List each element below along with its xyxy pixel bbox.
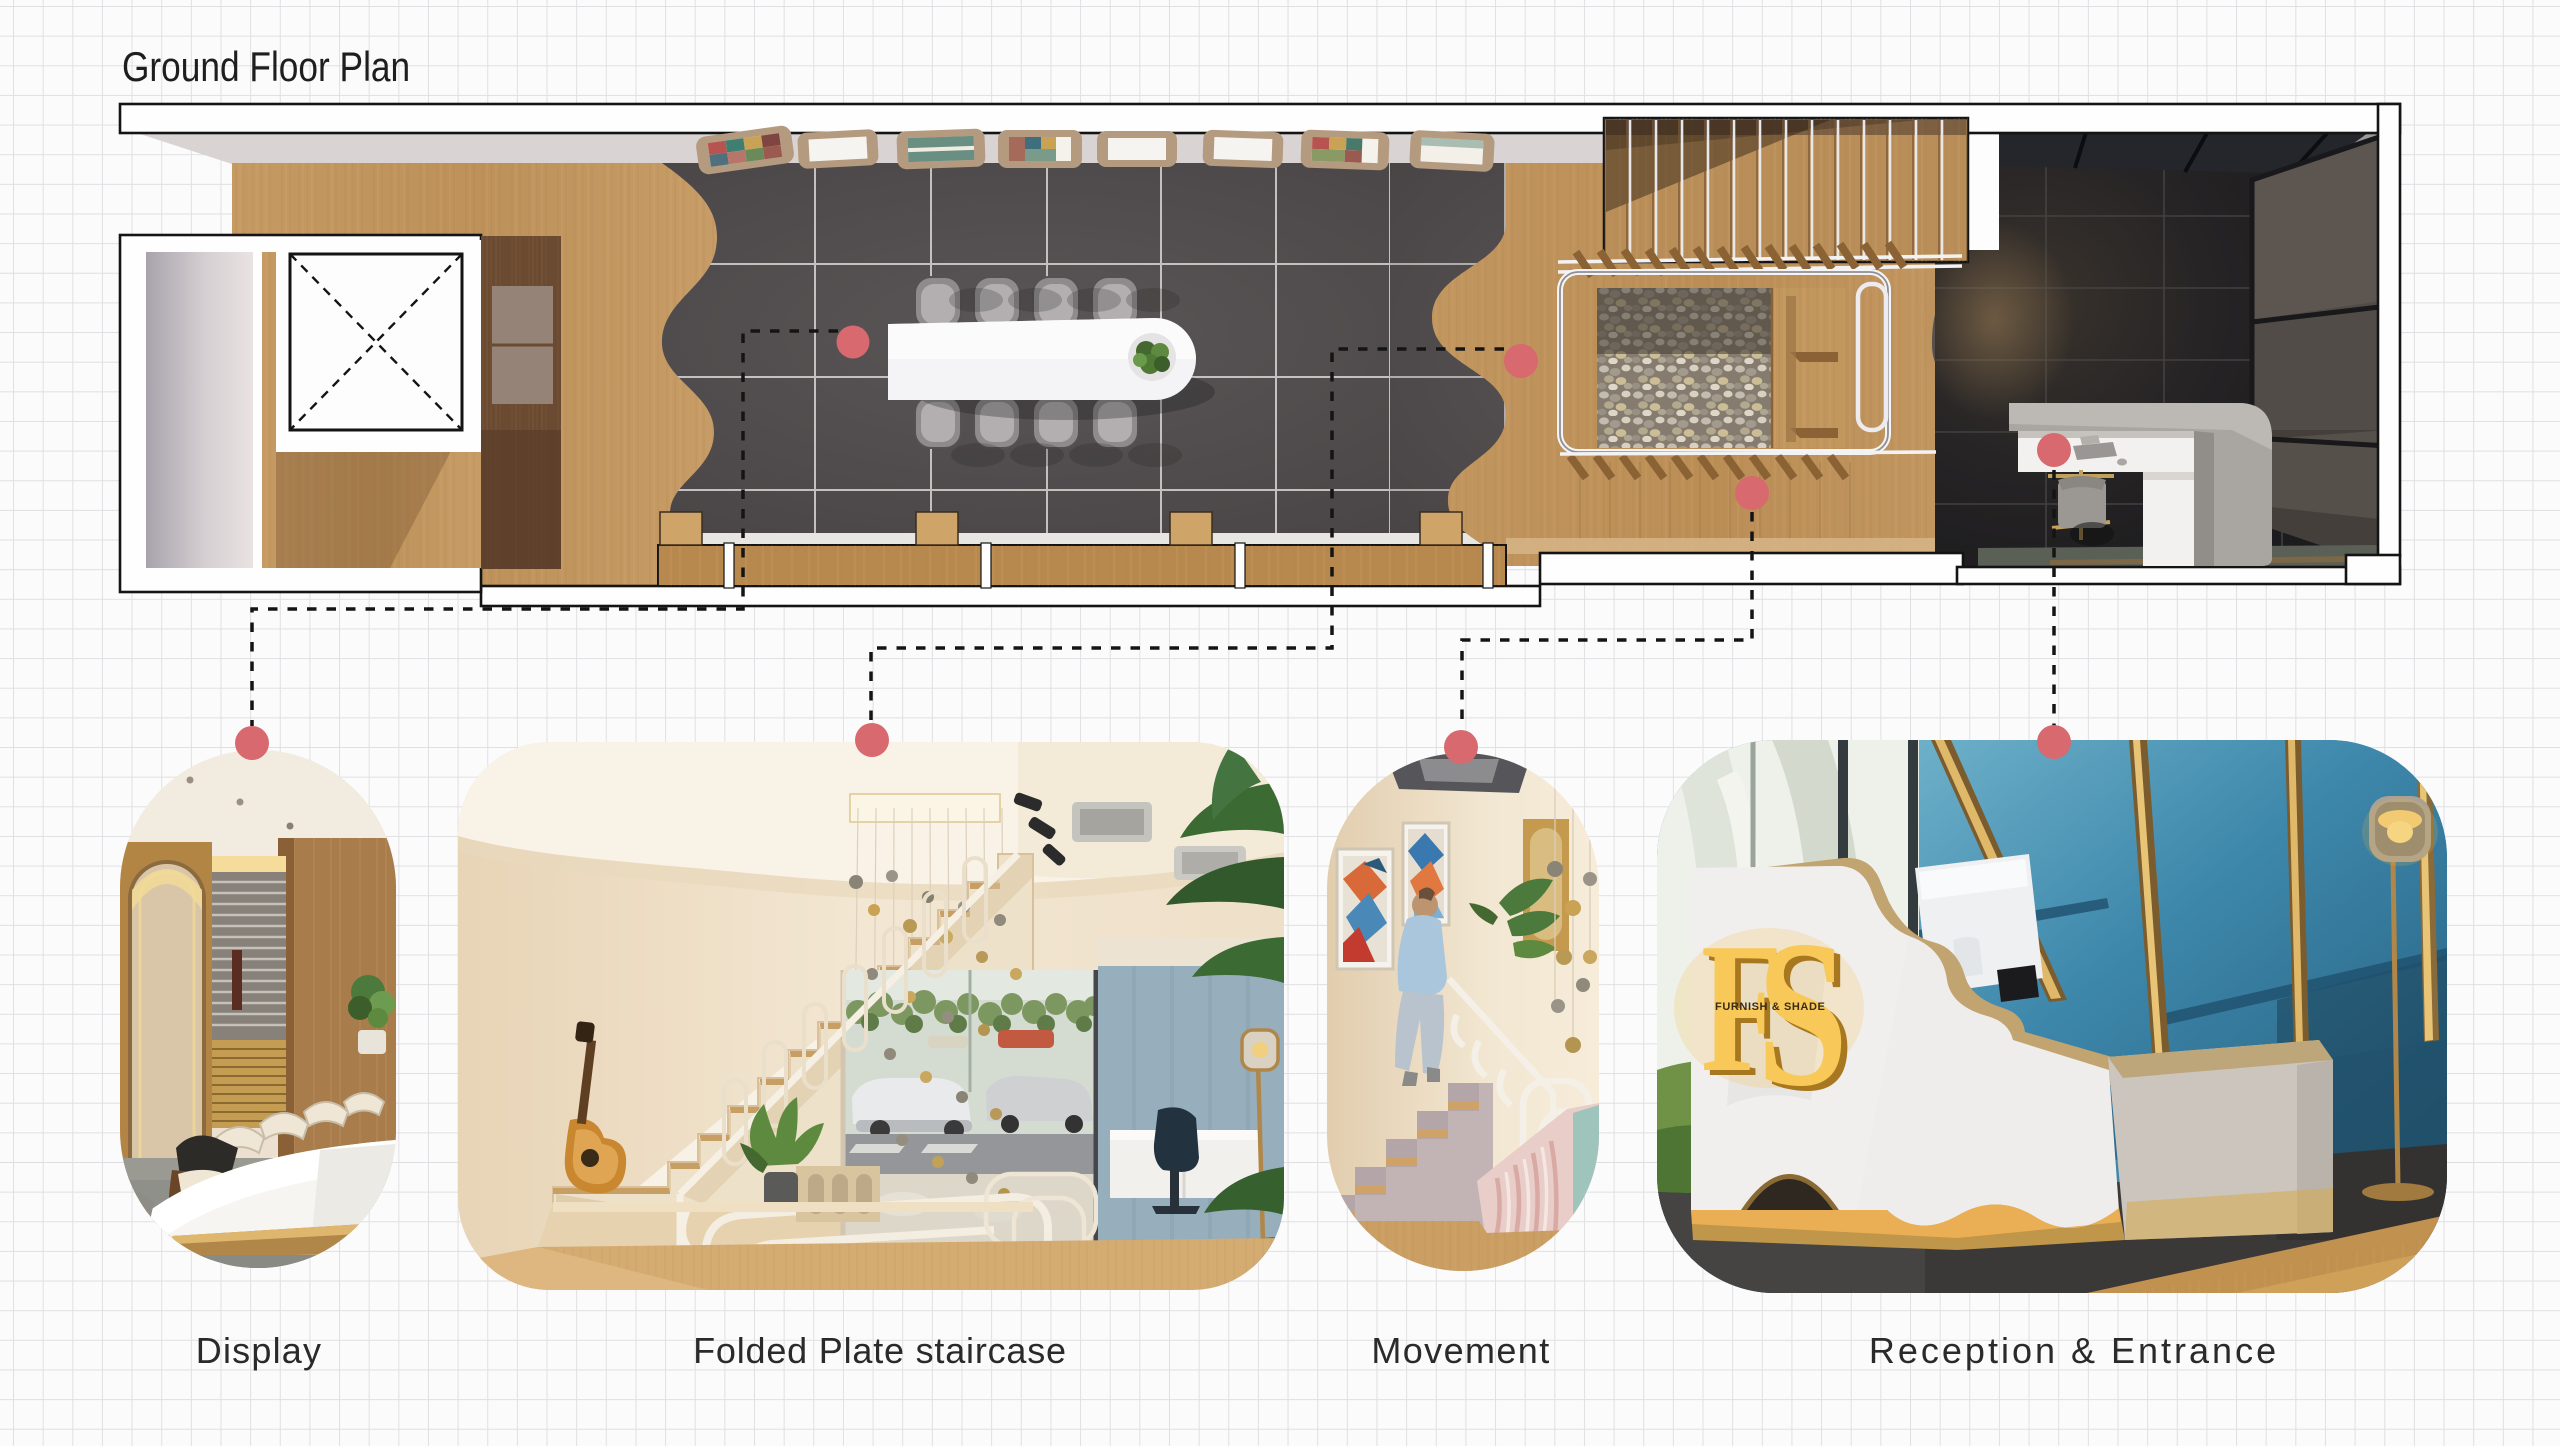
svg-text:Reception & Entrance: Reception & Entrance — [1869, 1330, 2279, 1371]
svg-text:Display: Display — [196, 1330, 322, 1371]
svg-text:S: S — [1757, 897, 1848, 1130]
svg-text:FURNISH & SHADE: FURNISH & SHADE — [1715, 1001, 1825, 1013]
svg-text:Folded Plate staircase: Folded Plate staircase — [693, 1330, 1067, 1371]
svg-text:Movement: Movement — [1371, 1330, 1550, 1371]
